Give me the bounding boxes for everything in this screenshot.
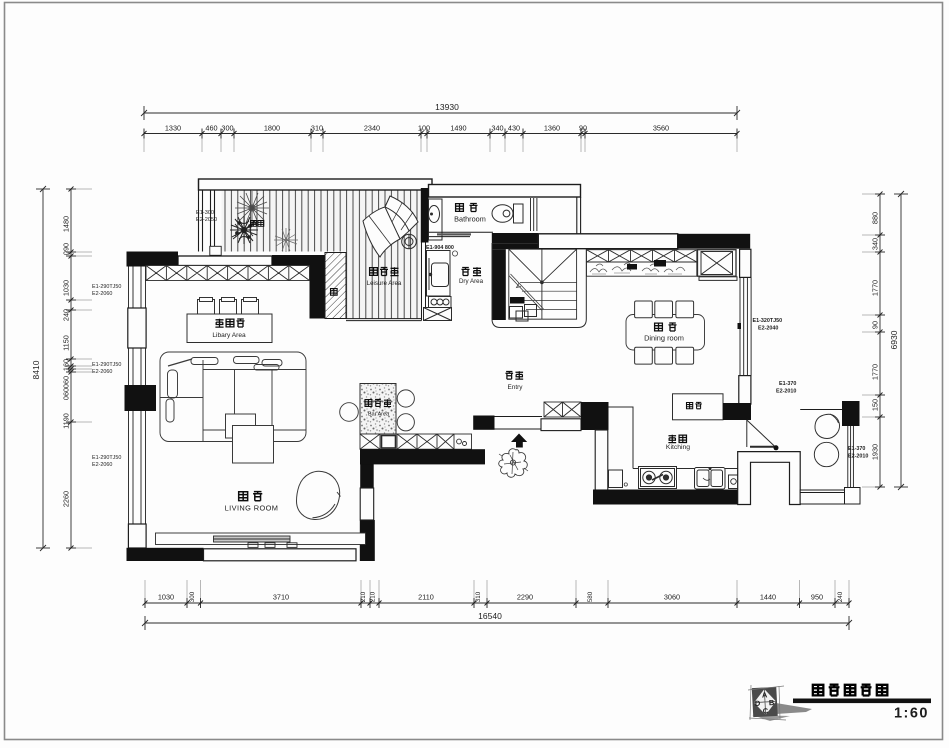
svg-text:E1-320TJ50: E1-320TJ50 — [753, 318, 783, 324]
svg-text:1770: 1770 — [871, 280, 880, 296]
svg-text:340: 340 — [871, 238, 880, 250]
svg-text:160: 160 — [62, 359, 71, 371]
svg-text:310: 310 — [475, 591, 482, 602]
svg-text:1190: 1190 — [62, 413, 71, 429]
svg-text:1800: 1800 — [264, 124, 280, 133]
svg-text:880: 880 — [871, 212, 880, 224]
svg-text:E2-2050: E2-2050 — [196, 217, 217, 223]
svg-text:2260: 2260 — [62, 491, 71, 507]
svg-text:580: 580 — [587, 591, 594, 602]
svg-text:E1-370: E1-370 — [848, 446, 865, 452]
svg-text:1:60: 1:60 — [894, 706, 929, 722]
svg-text:1490: 1490 — [450, 124, 466, 133]
svg-text:300: 300 — [189, 591, 196, 602]
svg-text:1480: 1480 — [62, 216, 71, 232]
svg-text:6930: 6930 — [889, 330, 899, 349]
svg-text:1150: 1150 — [62, 335, 71, 351]
svg-text:E1-290TJ50: E1-290TJ50 — [92, 284, 121, 290]
svg-text:A: A — [762, 690, 768, 699]
svg-text:950: 950 — [811, 593, 823, 602]
svg-text:E2-2010: E2-2010 — [848, 454, 868, 460]
svg-text:E2-2060: E2-2060 — [92, 369, 112, 375]
svg-text:1030: 1030 — [62, 280, 71, 296]
svg-text:D: D — [755, 699, 761, 708]
svg-text:2290: 2290 — [517, 593, 533, 602]
svg-text:430: 430 — [508, 124, 520, 133]
svg-text:1770: 1770 — [871, 364, 880, 380]
svg-text:Bathroom: Bathroom — [454, 215, 486, 224]
svg-text:3710: 3710 — [273, 593, 289, 602]
svg-text:210: 210 — [360, 591, 367, 602]
svg-text:1440: 1440 — [760, 593, 776, 602]
svg-text:E1-904 800: E1-904 800 — [426, 245, 454, 251]
svg-text:060: 060 — [62, 376, 71, 388]
svg-text:210: 210 — [370, 591, 377, 602]
svg-text:1360: 1360 — [544, 124, 560, 133]
svg-text:340: 340 — [491, 124, 503, 133]
svg-text:13930: 13930 — [435, 102, 459, 112]
svg-text:E1-290TJ50: E1-290TJ50 — [92, 455, 121, 461]
svg-text:Kitching: Kitching — [666, 444, 690, 451]
svg-text:B: B — [769, 698, 775, 707]
svg-text:Bar Area: Bar Area — [368, 412, 389, 418]
svg-text:90: 90 — [871, 321, 880, 329]
svg-text:E1-300: E1-300 — [196, 210, 214, 216]
svg-text:Dining room: Dining room — [644, 334, 684, 343]
svg-text:LIVING ROOM: LIVING ROOM — [225, 504, 279, 513]
svg-text:100: 100 — [418, 124, 430, 133]
svg-text:310: 310 — [311, 124, 323, 133]
svg-text:060: 060 — [62, 388, 71, 400]
svg-text:150: 150 — [871, 399, 880, 411]
svg-text:300: 300 — [221, 124, 233, 133]
svg-text:E2-2060: E2-2060 — [92, 291, 112, 297]
svg-text:1330: 1330 — [165, 124, 181, 133]
svg-text:240: 240 — [837, 591, 844, 602]
svg-text:2110: 2110 — [418, 593, 434, 602]
svg-text:E2-2040: E2-2040 — [758, 326, 778, 332]
svg-text:E1-290TJ50: E1-290TJ50 — [92, 362, 121, 368]
svg-text:090: 090 — [62, 243, 71, 255]
svg-text:3060: 3060 — [664, 593, 680, 602]
svg-text:E1-370: E1-370 — [779, 381, 796, 387]
svg-text:240: 240 — [62, 309, 71, 321]
svg-text:460: 460 — [205, 124, 217, 133]
svg-text:Leisure Area: Leisure Area — [367, 280, 402, 287]
svg-text:E2-2010: E2-2010 — [776, 389, 796, 395]
svg-text:2340: 2340 — [364, 124, 380, 133]
svg-text:1930: 1930 — [871, 444, 880, 460]
svg-text:E2-2060: E2-2060 — [92, 462, 112, 468]
svg-text:90: 90 — [579, 124, 587, 133]
svg-text:1030: 1030 — [158, 593, 174, 602]
svg-text:3560: 3560 — [653, 124, 669, 133]
svg-text:8410: 8410 — [31, 360, 41, 379]
svg-text:16540: 16540 — [478, 611, 502, 621]
svg-text:Dry Area: Dry Area — [459, 278, 484, 285]
svg-text:Entry: Entry — [508, 384, 524, 391]
svg-text:C: C — [763, 706, 769, 715]
svg-text:Libary Area: Libary Area — [212, 332, 246, 339]
